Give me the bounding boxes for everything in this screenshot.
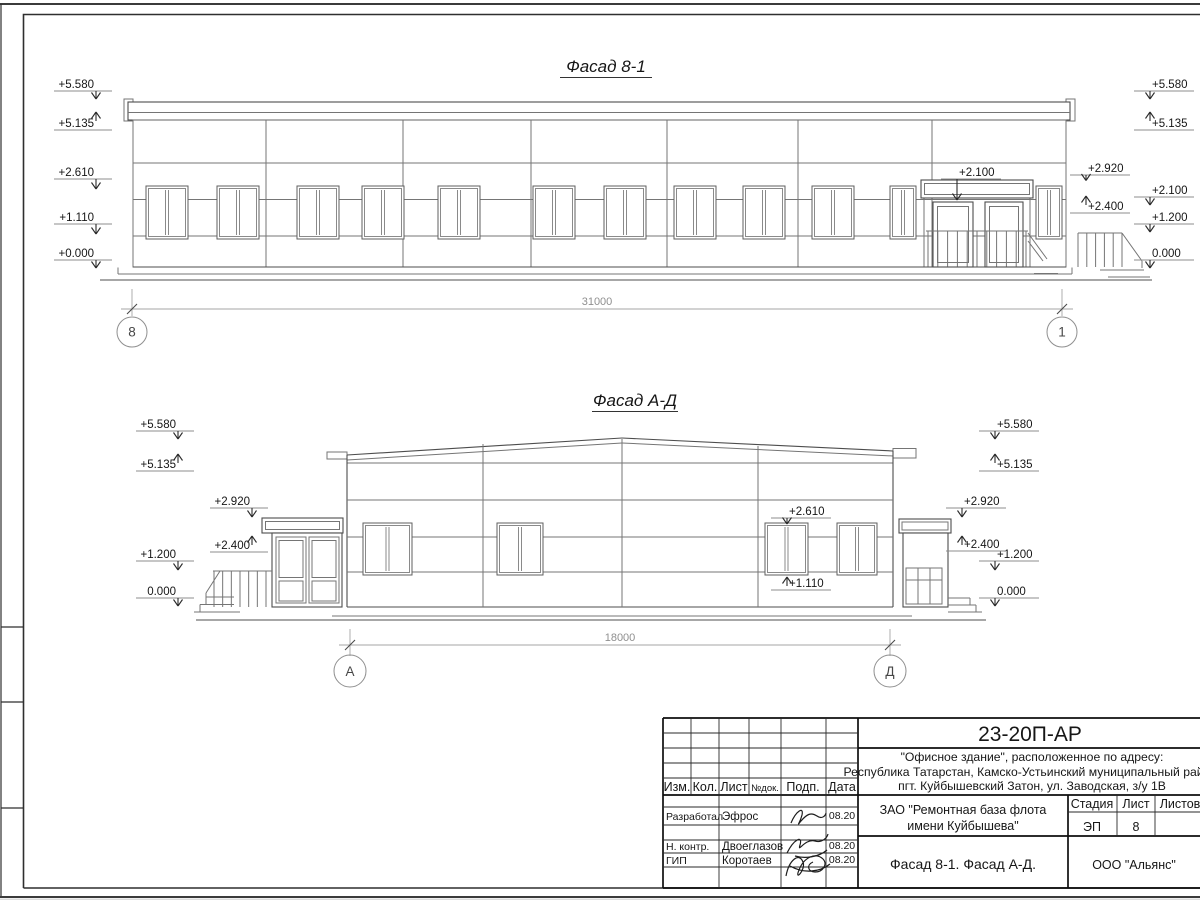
f81-right-railing — [1078, 233, 1150, 277]
axis-1-label: 1 — [1058, 325, 1066, 340]
row-role: Н. контр. — [666, 841, 709, 853]
elevation-mark: +1.200 — [136, 549, 194, 570]
col-stage: Стадия — [1071, 797, 1114, 811]
drawing-sheet: Фасад 8-1 — [0, 0, 1200, 900]
elevation-label: +5.580 — [59, 79, 95, 91]
f81-dim-label: 31000 — [582, 296, 613, 308]
elevation-mark: +1.200 — [979, 549, 1039, 570]
elevation-mark: +1.200 — [1134, 212, 1194, 232]
elevation-label: +5.580 — [997, 419, 1033, 431]
sheet-title: Фасад 8-1. Фасад А-Д. — [890, 856, 1036, 872]
f81-entrance-canopy — [921, 180, 1033, 198]
elevation-label: +2.400 — [964, 539, 1000, 551]
elevation-mark-window-sill: +1.110 — [771, 577, 831, 590]
elevation-label: +2.610 — [59, 167, 95, 179]
facade-ad-drawing: Фасад А-Д — [136, 391, 1039, 687]
facade-81-drawing: Фасад 8-1 — [54, 57, 1194, 347]
elevation-label: +1.110 — [789, 578, 824, 590]
axis-a-label: А — [345, 664, 354, 679]
elevation-label: +1.110 — [59, 212, 94, 224]
row-date: 08.20 — [829, 840, 855, 852]
elevation-mark: +5.580 — [1134, 79, 1194, 99]
sheet-number: 8 — [1133, 820, 1140, 834]
title-block: Изм. Кол. Лист №док. Подп. Дата Разработ… — [663, 718, 1200, 888]
elevation-mark: 0.000 — [136, 586, 194, 606]
elevation-label: +2.100 — [1152, 185, 1188, 197]
elevation-label: +2.920 — [215, 496, 251, 508]
col-data: Дата — [828, 780, 856, 794]
elevation-mark: +2.100 — [1134, 185, 1194, 205]
elevation-label: +5.580 — [1152, 79, 1188, 91]
fad-building — [327, 438, 916, 607]
f81-dimension: 31000 8 1 — [117, 289, 1077, 347]
drawing-canvas: Фасад 8-1 — [0, 0, 1200, 900]
elevation-mark: +5.580 — [54, 79, 112, 99]
elevation-mark: +5.135 — [1134, 112, 1194, 130]
elevation-label: +2.920 — [1088, 163, 1124, 175]
elevation-mark: +2.920 — [1070, 163, 1130, 181]
elevation-label: +2.400 — [1088, 201, 1124, 213]
elevation-label: +1.200 — [141, 549, 177, 561]
elevation-label: +2.920 — [964, 496, 1000, 508]
elevation-label: +2.610 — [789, 506, 825, 518]
col-sheets: Листов — [1160, 797, 1200, 811]
row-date: 08.20 — [829, 810, 855, 822]
fad-left-vestibule — [194, 518, 343, 612]
row-name: Коротаев — [722, 855, 772, 867]
elevation-mark: +5.580 — [136, 419, 194, 439]
elevation-mark: +2.920 — [946, 496, 1006, 517]
elevation-label: +5.135 — [59, 118, 95, 130]
facade-ad-title: Фасад А-Д — [593, 391, 677, 410]
elevation-mark: +0.000 — [54, 248, 112, 268]
elevation-mark: +2.610 — [54, 167, 112, 189]
company-name: ООО "Альянс" — [1092, 858, 1176, 872]
col-izm: Изм. — [664, 780, 691, 794]
elevation-mark: +5.135 — [54, 112, 112, 130]
signature — [791, 810, 826, 823]
elevation-label: +0.000 — [59, 248, 95, 260]
facade-81-title: Фасад 8-1 — [566, 57, 646, 76]
elevation-label: +1.200 — [1152, 212, 1188, 224]
col-kol: Кол. — [693, 780, 718, 794]
fad-left-entrance — [272, 533, 342, 607]
col-podp: Подп. — [786, 780, 819, 794]
fad-left-canopy — [262, 518, 343, 533]
elevation-mark: +2.920 — [210, 496, 268, 517]
elevation-mark: +5.135 — [136, 454, 194, 471]
object-line-3: пгт. Куйбышевский Затон, ул. Заводская, … — [898, 779, 1166, 793]
row-role: Разработал — [666, 811, 723, 823]
elevation-mark: 0.000 — [1134, 248, 1194, 268]
fad-left-railing-posts — [214, 571, 266, 607]
doc-code: 23-20П-АР — [978, 723, 1082, 746]
frame-side-boxes — [1, 627, 24, 808]
elevation-label: +2.400 — [215, 540, 251, 552]
stage-value: ЭП — [1083, 820, 1101, 834]
col-list: Лист — [720, 780, 747, 794]
axis-8-label: 8 — [128, 325, 136, 340]
elevation-mark-window-top: +2.610 — [771, 506, 831, 524]
elevation-mark: +5.580 — [979, 419, 1039, 439]
elevation-label: +5.135 — [1152, 118, 1188, 130]
signature — [786, 856, 830, 876]
elevation-mark: +2.400 — [210, 536, 268, 552]
fad-base — [196, 616, 986, 620]
object-line-2: Республика Татарстан, Камско-Устьинский … — [844, 765, 1200, 779]
elevation-label: 0.000 — [997, 586, 1026, 598]
client-line-2: имени Куйбышева" — [907, 819, 1018, 833]
row-name: Двоеглазов — [722, 841, 783, 853]
elevation-label: +2.100 — [959, 167, 995, 179]
elevation-label: 0.000 — [147, 586, 176, 598]
elevation-label: +5.580 — [141, 419, 177, 431]
axis-d-label: Д — [885, 664, 894, 679]
f81-entrance-door-right — [985, 202, 1023, 267]
row-date: 08.20 — [829, 854, 855, 866]
col-sheet: Лист — [1122, 797, 1149, 811]
fad-windows — [363, 523, 877, 575]
col-ndoc: №док. — [751, 783, 779, 794]
elevation-label: 0.000 — [1152, 248, 1181, 260]
elevation-label: +5.135 — [141, 459, 177, 471]
f81-base — [100, 267, 1152, 280]
signature — [787, 834, 828, 857]
elevation-mark: +5.135 — [979, 454, 1039, 471]
elevation-label: +5.135 — [997, 459, 1033, 471]
row-role: ГИП — [666, 855, 687, 867]
f81-right-railing-posts — [1078, 233, 1122, 267]
elevation-mark: 0.000 — [979, 586, 1039, 606]
fad-right-canopy — [899, 519, 951, 533]
fad-right-vestibule — [899, 519, 982, 612]
row-name: Эфрос — [722, 811, 759, 823]
fad-dim-label: 18000 — [605, 632, 636, 644]
object-line-1: "Офисное здание", расположенное по адрес… — [901, 750, 1164, 764]
client-line-1: ЗАО "Ремонтная база флота — [880, 803, 1047, 817]
elevation-mark: +2.400 — [1070, 196, 1130, 213]
elevation-mark: +2.400 — [946, 536, 1006, 551]
elevation-mark: +1.110 — [54, 212, 112, 234]
fad-dimension: 18000 А Д — [334, 629, 906, 687]
